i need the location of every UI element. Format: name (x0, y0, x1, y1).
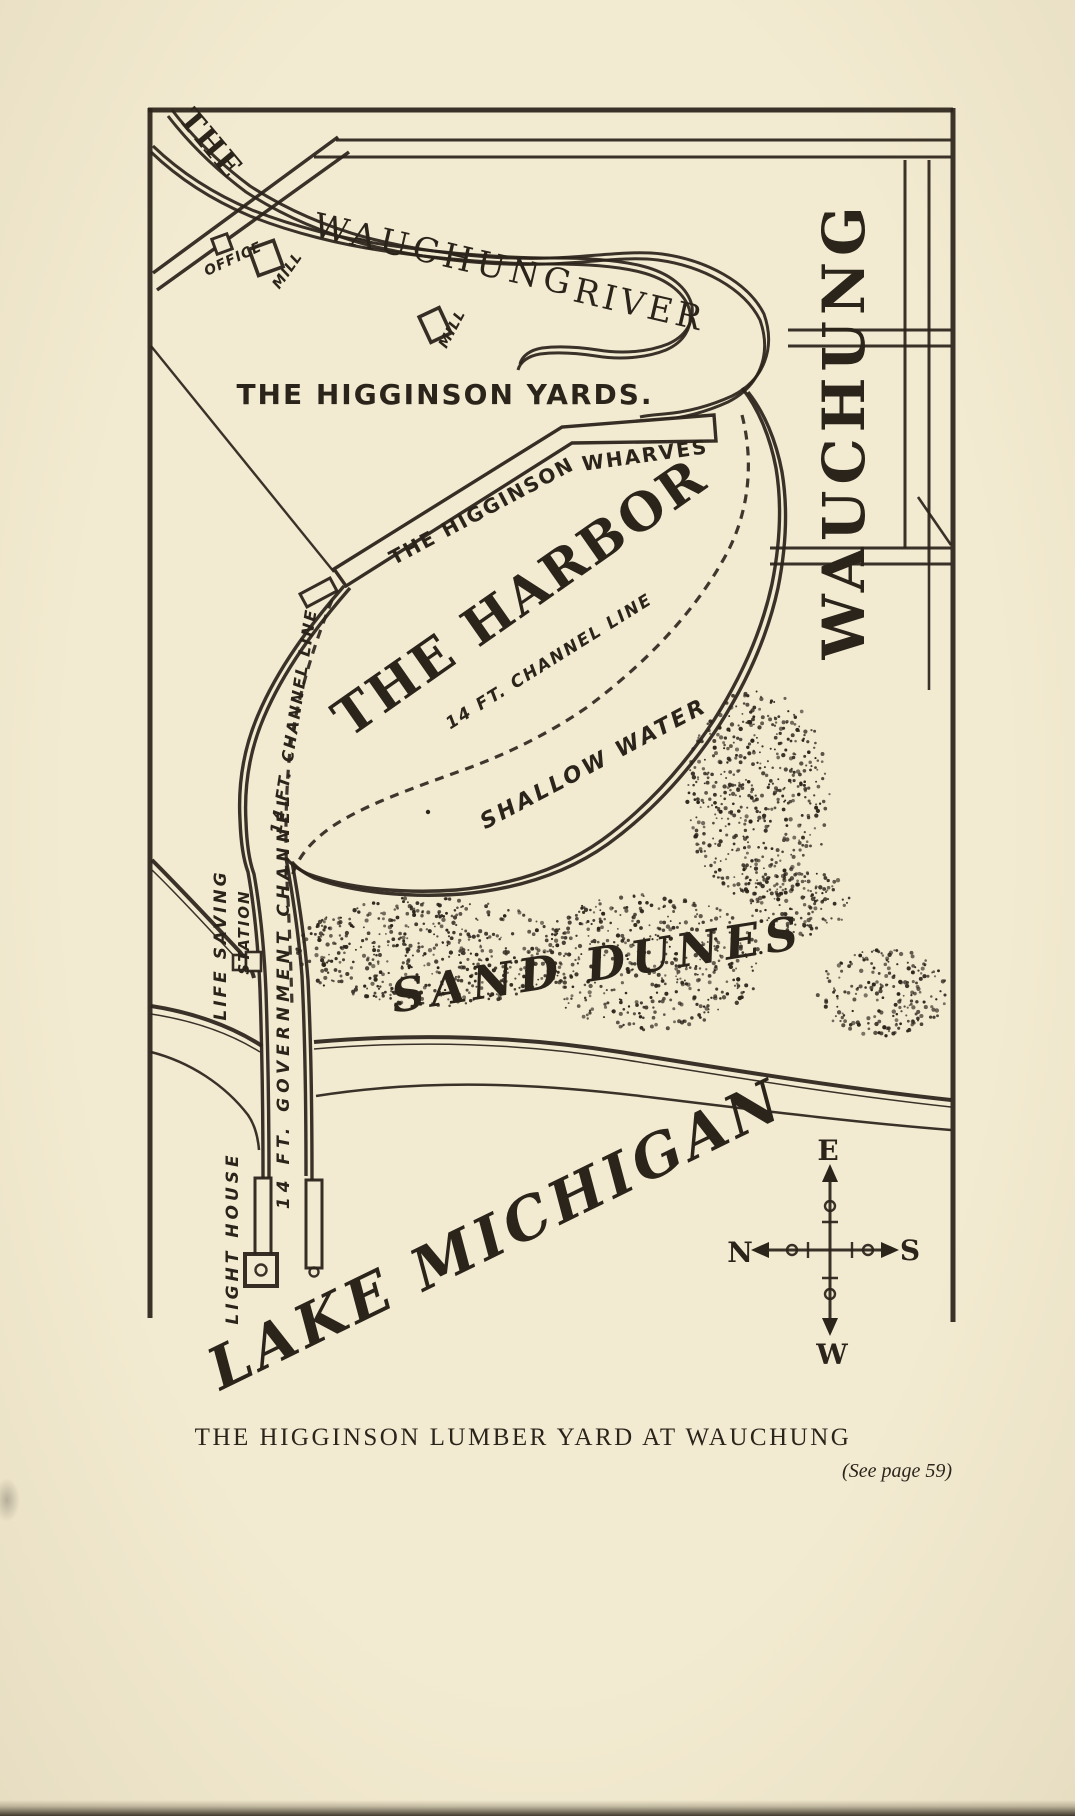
book-page: E N S W THE WAUCHUNG RIVER OFFICE MILL M… (0, 0, 1075, 1816)
life-saving-station-label-1: LIFE SAVING (211, 869, 231, 1020)
light-house-label: LIGHT HOUSE (223, 1151, 243, 1324)
shallow-water-label: SHALLOW WATER (476, 694, 712, 835)
higginson-map: E N S W THE WAUCHUNG RIVER OFFICE MILL M… (0, 0, 1075, 1816)
river-label-wauchung: WAUCHUNG (310, 206, 580, 305)
compass-arrow-down-icon (822, 1318, 838, 1336)
compass-label-north: N (727, 1236, 753, 1269)
compass-rose: E N S W (727, 1134, 920, 1371)
compass-arrow-right-icon (881, 1242, 899, 1258)
sand-dunes-label: SAND DUNES (387, 905, 808, 1024)
compass-label-east: E (817, 1134, 838, 1167)
compass-arrow-left-icon (751, 1242, 769, 1258)
life-saving-station-label-2: STATION (235, 889, 253, 974)
figure-caption: THE HIGGINSON LUMBER YARD AT WAUCHUNG (195, 1424, 852, 1451)
office-building (212, 234, 233, 255)
compass-label-south: S (900, 1234, 920, 1267)
page-bottom-edge (0, 1800, 1075, 1816)
light-house-building (245, 1254, 277, 1286)
government-channel-label: 14 FT. GOVERNMENT CHANNEL (274, 791, 294, 1209)
compass-label-west: W (815, 1338, 848, 1371)
lake-shoreline (151, 860, 951, 1150)
higginson-yards-label: THE HIGGINSON YARDS. (236, 378, 653, 411)
river-label-river: RIVER (570, 271, 710, 340)
page-reference: (See page 59) (842, 1460, 952, 1482)
wauchung-town-label: WAUCHUNG (810, 200, 878, 660)
